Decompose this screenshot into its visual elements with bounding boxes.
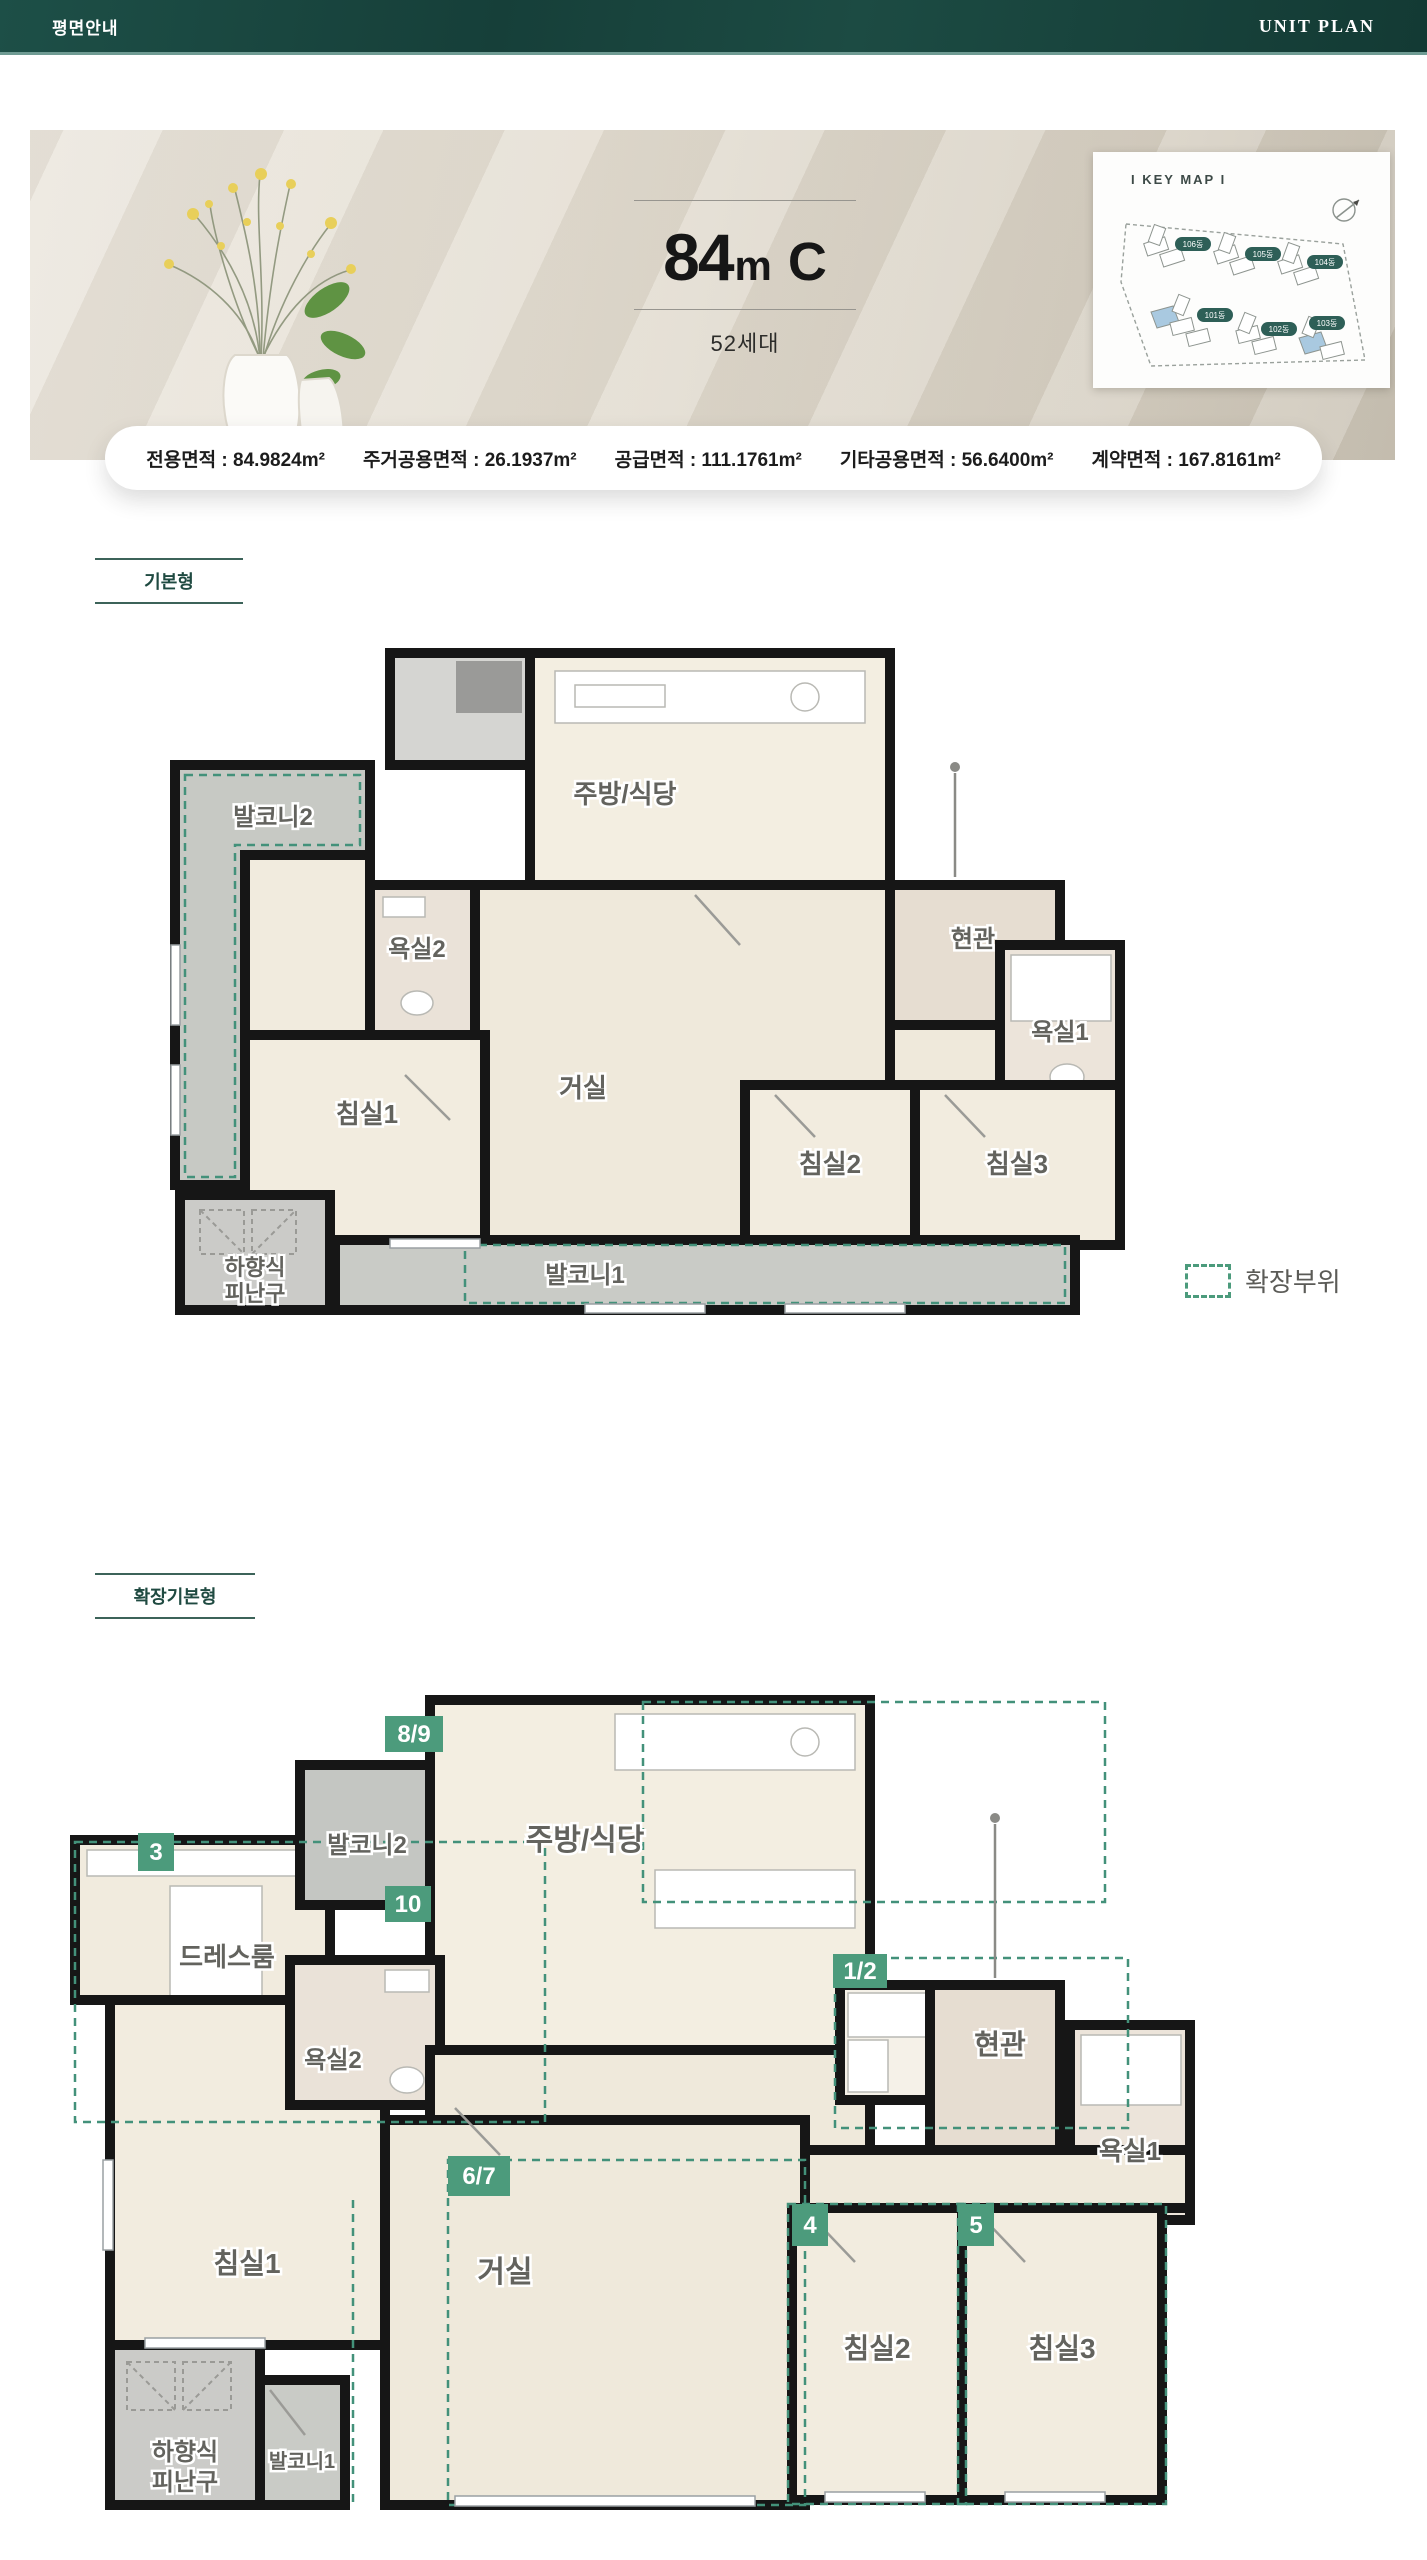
page-title: 평면안내: [52, 14, 119, 39]
window: [145, 2338, 265, 2348]
extension-legend: 확장부위: [1185, 1262, 1341, 1299]
building-label: 101동: [1205, 311, 1226, 320]
room-entrance-label: 현관: [951, 926, 995, 953]
building-label: 103동: [1317, 319, 1338, 328]
window: [171, 945, 180, 1025]
left-corridor-area: [245, 855, 370, 1035]
svg-text:6/7: 6/7: [462, 2163, 495, 2190]
window: [825, 2492, 925, 2502]
building-label: 105동: [1253, 250, 1274, 259]
room-bath2-label: 욕실2: [304, 2047, 362, 2074]
extension-legend-label: 확장부위: [1245, 1262, 1341, 1299]
room-balcony1-area: [335, 1240, 1075, 1310]
room-bath1-label: 욕실1: [1099, 2136, 1161, 2166]
unit-plan-page: 평면안내 UNIT PLAN: [0, 0, 1427, 2560]
unit-sqm: m: [735, 242, 772, 290]
key-map-site-plan: 106동 105동 104동: [1093, 152, 1390, 388]
escape-hatch-label-1: 하향식: [152, 2439, 218, 2466]
badge-8-9: 8/9: [385, 1716, 443, 1752]
building-cluster-103: 103동: [1299, 316, 1345, 359]
section-label-extended: 확장기본형: [95, 1573, 255, 1619]
badge-4: 4: [792, 2204, 828, 2246]
unit-type-title: 84mC: [605, 219, 885, 295]
section-label-basic: 기본형: [95, 558, 243, 604]
households-count: 52세대: [605, 326, 885, 358]
building-cluster-101: 101동: [1151, 294, 1233, 346]
window: [585, 1304, 705, 1313]
badge-3: 3: [138, 1833, 174, 1871]
floor-plan-basic: 발코니2 주방/식당 욕실2 침실1 거실 현관 욕실1 침실2 침실3 발코니…: [155, 645, 1135, 1335]
page-header: 평면안내 UNIT PLAN: [0, 0, 1427, 55]
room-bed3-label: 침실3: [1028, 2333, 1095, 2364]
badge-1-2: 1/2: [833, 1954, 887, 1988]
room-bed3-label: 침실3: [986, 1149, 1048, 1179]
building-cluster-105: 105동: [1214, 232, 1281, 275]
window: [390, 1239, 480, 1248]
room-bed2-label: 침실2: [843, 2333, 910, 2364]
window: [171, 1065, 180, 1135]
room-balcony2-label: 발코니2: [233, 804, 313, 831]
room-dressroom-label: 드레스룸: [179, 1942, 275, 1972]
floor-plan-extended: 8/9 3 10 1/2 6/7 4 5 드레스룸 발코니2 주방/식당: [55, 1690, 1285, 2520]
entry-direction-marker: [990, 1813, 1000, 1978]
window: [1005, 2492, 1105, 2502]
unit-suffix: C: [788, 231, 827, 293]
building-label: 106동: [1183, 240, 1204, 249]
window: [103, 2160, 113, 2250]
title-rule-top: [634, 200, 856, 201]
area-spec-residential-common: 주거공용면적 : 26.1937m²: [363, 445, 577, 472]
utility-closet: [456, 661, 522, 713]
title-rule-bottom: [634, 309, 856, 310]
escape-hatch-label-1: 하향식: [225, 1255, 286, 1280]
unit-title-block: 84mC 52세대: [605, 200, 885, 358]
badge-5: 5: [958, 2204, 994, 2246]
building-cluster-106: 106동: [1144, 224, 1211, 267]
svg-text:5: 5: [969, 2212, 982, 2239]
svg-text:8/9: 8/9: [397, 1721, 430, 1748]
room-balcony2-label: 발코니2: [327, 1832, 407, 1859]
escape-hatch-label-2: 피난구: [225, 1281, 286, 1306]
room-living-label: 거실: [559, 1073, 607, 1103]
escape-hatch-label-2: 피난구: [152, 2469, 218, 2496]
flower-vase-image: [75, 130, 495, 460]
area-spec-other-common: 기타공용면적 : 56.6400m²: [840, 445, 1054, 472]
area-spec-exclusive: 전용면적 : 84.9824m²: [146, 445, 325, 472]
kitchen-counter: [555, 671, 865, 723]
room-entrance-area: [930, 1985, 1060, 2150]
room-kitchen-label: 주방/식당: [526, 1824, 645, 1857]
badge-10: 10: [385, 1886, 431, 1922]
room-bed2-label: 침실2: [799, 1149, 861, 1179]
extension-legend-swatch: [1185, 1264, 1231, 1298]
compass-icon: [1333, 199, 1359, 221]
area-spec-bar: 전용면적 : 84.9824m² 주거공용면적 : 26.1937m² 공급면적…: [105, 426, 1322, 490]
badge-6-7: 6/7: [448, 2156, 510, 2196]
svg-text:10: 10: [395, 1891, 422, 1918]
room-living-label: 거실: [477, 2256, 532, 2289]
building-cluster-102: 102동: [1236, 312, 1297, 354]
room-bed1-label: 침실1: [336, 1099, 398, 1129]
area-spec-supply: 공급면적 : 111.1761m²: [615, 445, 802, 472]
entry-direction-marker: [950, 762, 960, 877]
building-label: 102동: [1269, 325, 1290, 334]
room-bed1-label: 침실1: [213, 2248, 280, 2279]
building-cluster-104: 104동: [1278, 242, 1343, 285]
svg-text:4: 4: [803, 2212, 817, 2239]
svg-text:1/2: 1/2: [843, 1958, 876, 1985]
room-entrance-label: 현관: [974, 2029, 1026, 2060]
window: [785, 1304, 905, 1313]
unit-banner: 84mC 52세대 I KEY MAP I: [30, 130, 1395, 460]
room-balcony1-label: 발코니1: [269, 2450, 335, 2473]
svg-text:3: 3: [149, 1839, 162, 1866]
room-bath2-label: 욕실2: [388, 936, 446, 963]
building-label: 104동: [1315, 258, 1336, 267]
key-map: I KEY MAP I 106동: [1093, 152, 1390, 388]
window: [455, 2496, 755, 2506]
unit-number: 84: [663, 219, 732, 295]
room-balcony1-label: 발코니1: [545, 1262, 625, 1289]
key-map-title: I KEY MAP I: [1131, 172, 1226, 187]
area-spec-contract: 계약면적 : 167.8161m²: [1091, 445, 1280, 472]
room-kitchen-label: 주방/식당: [574, 779, 677, 809]
room-bath1-label: 욕실1: [1031, 1019, 1089, 1046]
page-subtitle: UNIT PLAN: [1259, 16, 1375, 37]
room-balcony1-area: [260, 2380, 345, 2505]
